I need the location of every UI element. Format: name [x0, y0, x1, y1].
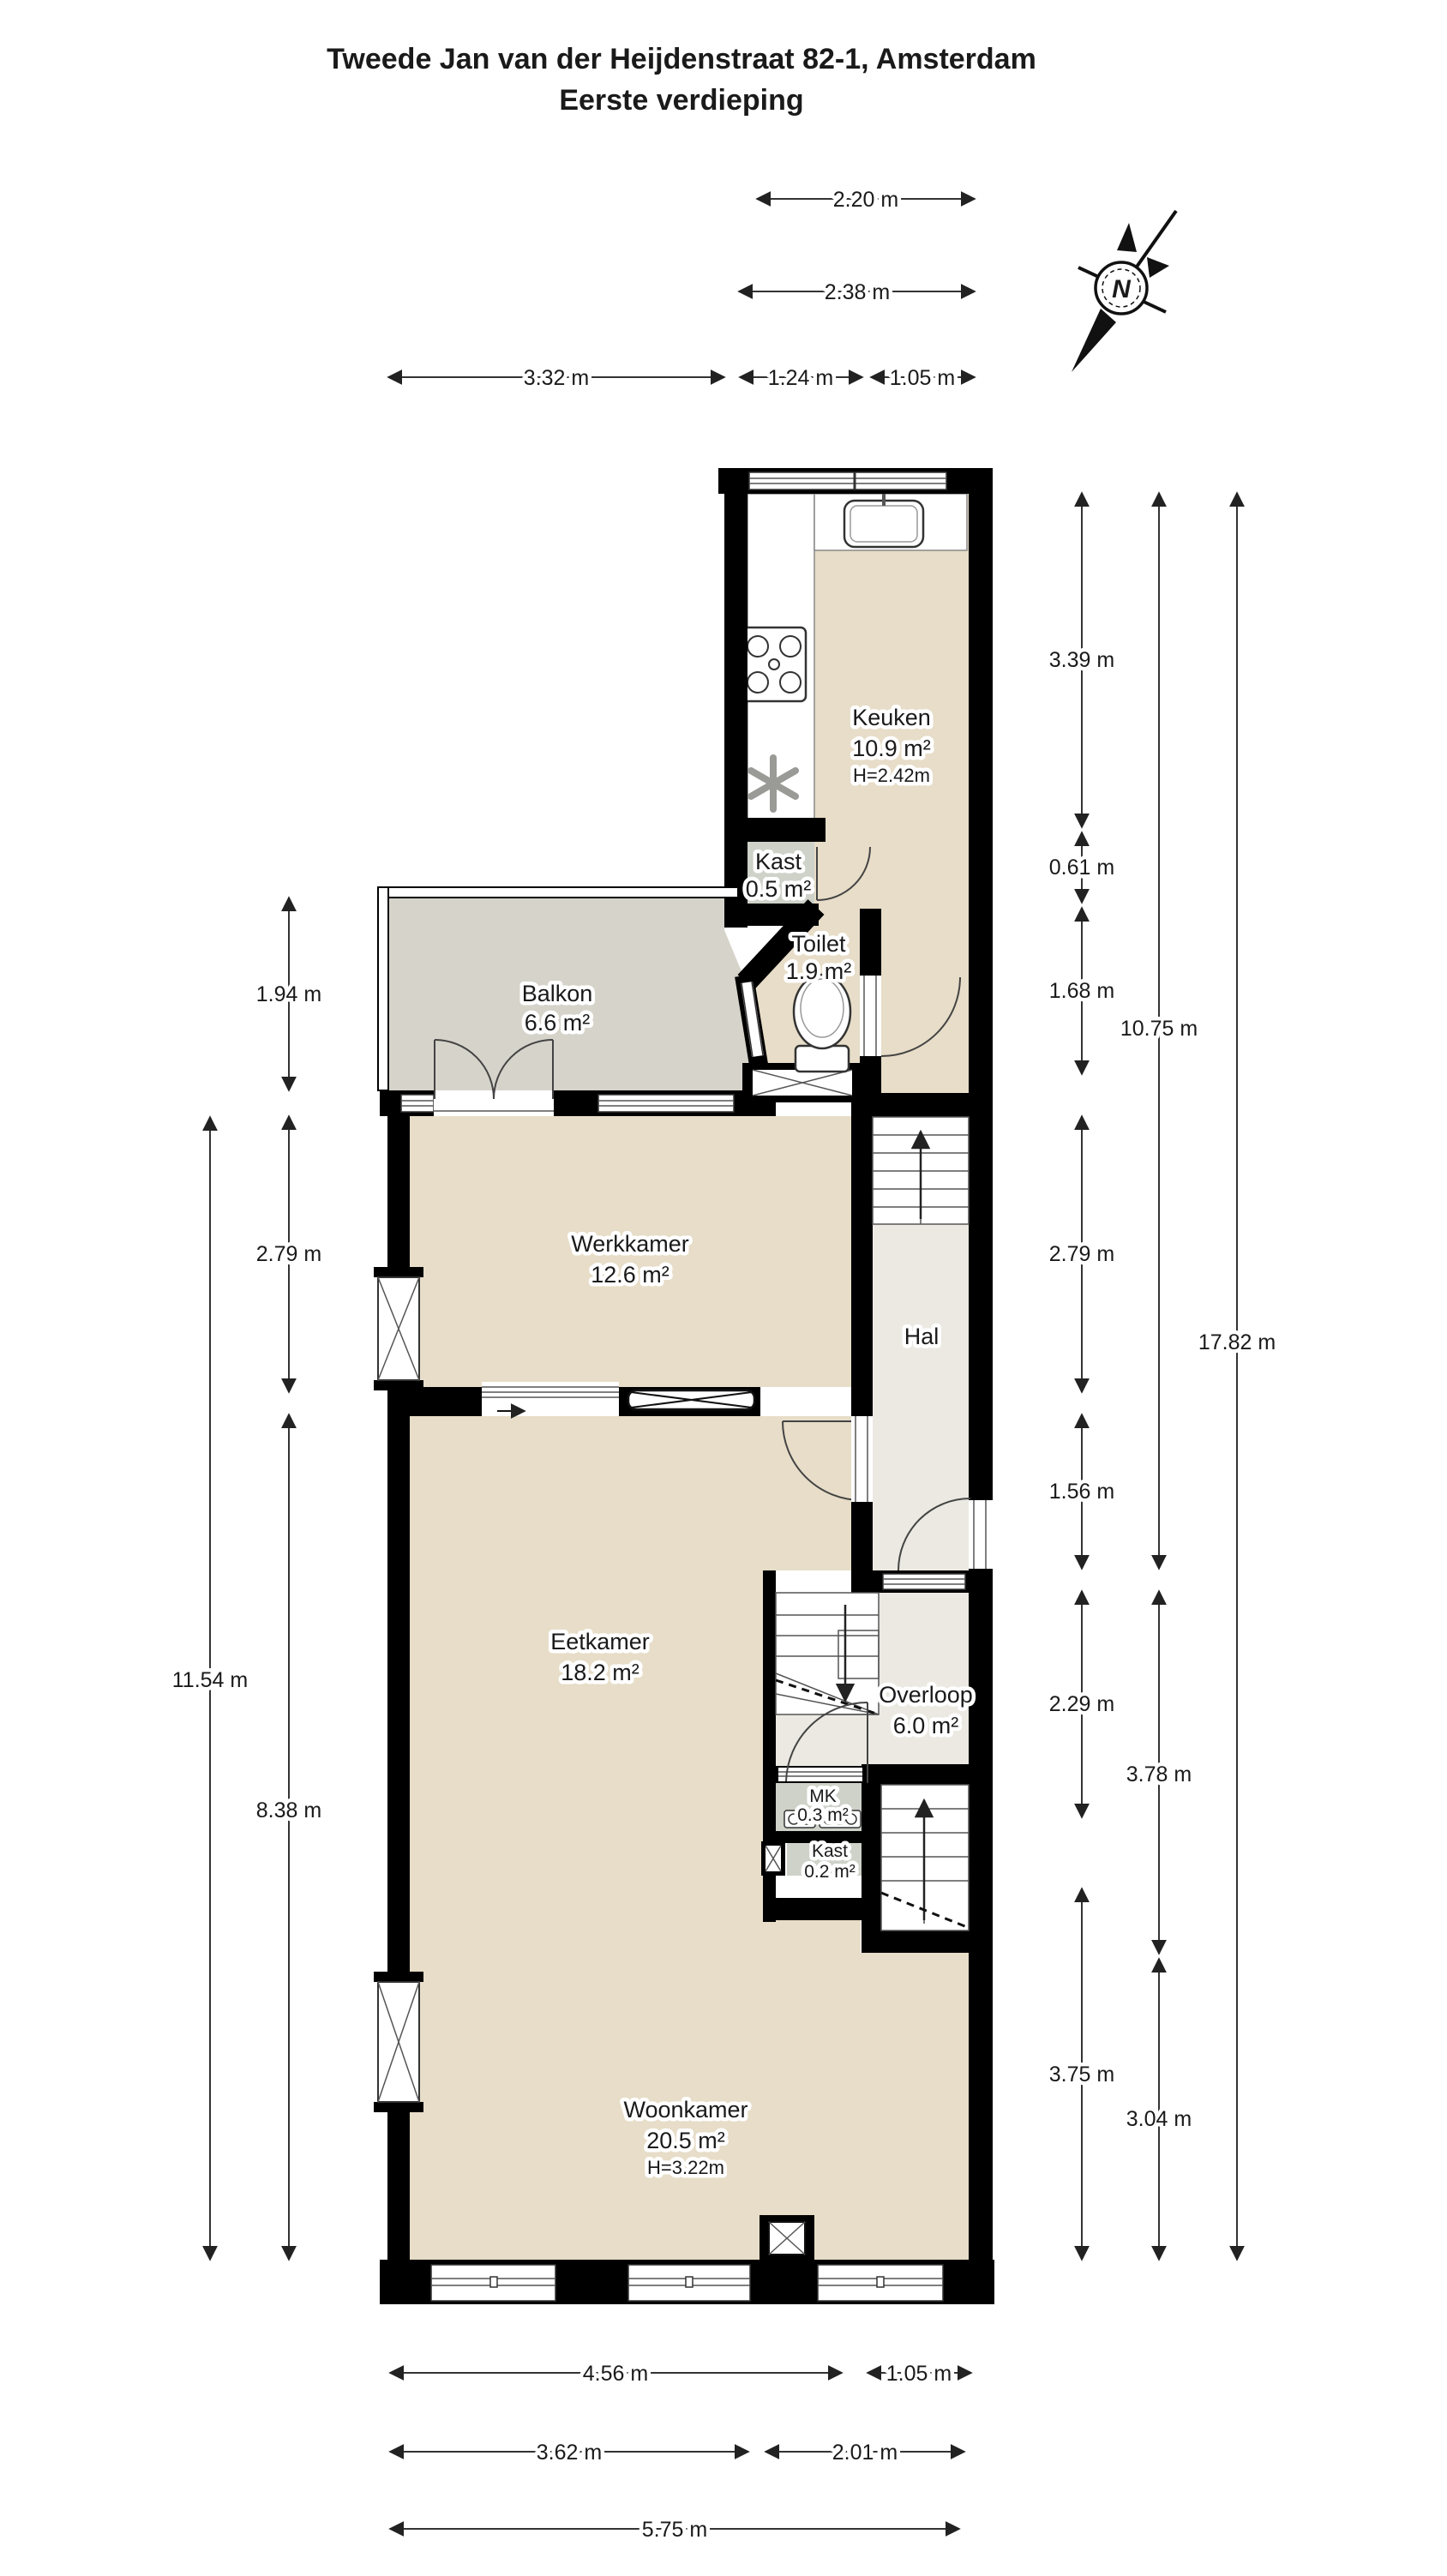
- dim-left-838: 8.38 m: [256, 1798, 321, 1822]
- stairs-winder: [776, 1593, 879, 1714]
- label-toilet-name: Toilet: [791, 931, 846, 957]
- window-balcony-left: [401, 1095, 434, 1112]
- floorplan-drawing: Tweede Jan van der Heijdenstraat 82-1, A…: [0, 0, 1447, 2572]
- dim-bottom-362: 3.62 m: [537, 2441, 602, 2465]
- label-kast-boven-area: 0.5 m²: [746, 876, 812, 902]
- dim-right-1075: 10.75 m: [1120, 1017, 1198, 1041]
- dim-bottom-105: 1.05 m: [886, 2362, 952, 2386]
- label-woonkamer-area: 20.5 m²: [646, 2128, 725, 2153]
- toilet-icon: [794, 975, 850, 1072]
- window-kitchen-top: [749, 472, 946, 489]
- mk-threshold: [778, 1768, 862, 1781]
- stove-icon: [742, 627, 806, 701]
- label-balkon-name: Balkon: [522, 981, 593, 1006]
- dim-top-332: 3.32 m: [524, 366, 589, 390]
- wall-stair2-bottom: [862, 1930, 993, 1953]
- dim-right-279: 2.79 m: [1049, 1242, 1114, 1266]
- dim-top-124: 1.24 m: [768, 366, 833, 390]
- window-balcony-right: [598, 1095, 734, 1112]
- dim-left-194: 1.94 m: [256, 982, 321, 1006]
- dim-right-339: 3.39 m: [1049, 648, 1114, 672]
- flue-inner: [769, 2222, 805, 2255]
- compass-south-blade: [1072, 309, 1116, 372]
- label-werkkamer-name: Werkkamer: [571, 1231, 689, 1257]
- compass-north-point: [1117, 223, 1137, 252]
- sliding-door: [482, 1382, 619, 1416]
- dim-bottom-575: 5.75 m: [642, 2518, 707, 2542]
- label-woonkamer-name: Woonkamer: [623, 2097, 748, 2123]
- shaft-kast-onder: [761, 1841, 785, 1876]
- room-keuken-floor-lower: [881, 909, 969, 1093]
- wall-kitchen-left: [724, 468, 748, 928]
- label-overloop-area: 6.0 m²: [893, 1713, 959, 1738]
- label-mk-name: MK: [809, 1786, 837, 1806]
- wall-stair2-left: [862, 1785, 881, 1953]
- label-eetkamer-name: Eetkamer: [550, 1629, 650, 1654]
- label-woonkamer-height: H=3.22m: [647, 2157, 724, 2178]
- dim-left-279: 2.79 m: [256, 1242, 321, 1266]
- label-overloop-name: Overloop: [879, 1682, 973, 1708]
- label-kast-boven-name: Kast: [755, 849, 802, 874]
- floorplan-page: Tweede Jan van der Heijdenstraat 82-1, A…: [0, 0, 1447, 2572]
- room-woonkamer-floor-right: [861, 1953, 969, 2260]
- label-eetkamer-area: 18.2 m²: [561, 1660, 639, 1685]
- window-hal-overloop: [883, 1574, 965, 1589]
- compass-east-point: [1147, 257, 1169, 278]
- dim-left-1154: 11.54 m: [172, 1668, 248, 1692]
- label-kast-onder-area: 0.2 m²: [804, 1862, 856, 1882]
- label-keuken-height: H=2.42m: [853, 765, 930, 786]
- room-keuken-floor: [814, 494, 969, 909]
- page-subtitle: Eerste verdieping: [559, 84, 803, 117]
- window-facade-1: [431, 2265, 555, 2301]
- label-kast-onder-name: Kast: [812, 1841, 848, 1861]
- compass-rose: N: [1072, 211, 1176, 372]
- dim-top-220: 2.20 m: [833, 188, 898, 212]
- dim-bottom-201: 2.01 m: [832, 2441, 898, 2465]
- window-werkkamer-left: [374, 1267, 423, 1390]
- stairs-hal: [873, 1117, 969, 1224]
- dim-right-378: 3.78 m: [1126, 1762, 1192, 1786]
- label-keuken-name: Keuken: [852, 705, 931, 730]
- dim-right-1782: 17.82 m: [1198, 1330, 1276, 1354]
- stairs-lower: [881, 1785, 969, 1930]
- dim-bottom-456: 4.56 m: [583, 2362, 648, 2386]
- label-werkkamer-area: 12.6 m²: [591, 1262, 669, 1288]
- dim-right-304: 3.04 m: [1126, 2107, 1192, 2131]
- page-title: Tweede Jan van der Heijdenstraat 82-1, A…: [327, 43, 1036, 75]
- label-keuken-area: 10.9 m²: [852, 736, 931, 761]
- label-balkon-area: 6.6 m²: [525, 1010, 591, 1036]
- plan-title-block: Tweede Jan van der Heijdenstraat 82-1, A…: [327, 43, 1036, 117]
- label-hal-name: Hal: [904, 1324, 940, 1349]
- dim-top-238: 2.38 m: [825, 280, 890, 304]
- label-toilet-area: 1.9 m²: [786, 958, 852, 984]
- window-woonkamer-left: [374, 1972, 423, 2112]
- room-woonkamer-floor-mid: [763, 1920, 861, 2260]
- wall-werkkamer-bottom-left: [387, 1387, 482, 1416]
- crossed-panel: [628, 1390, 754, 1409]
- wall-kast-boven-top: [724, 818, 826, 842]
- balcony-railing-top: [378, 887, 738, 898]
- dim-right-061: 0.61 m: [1049, 856, 1114, 880]
- wall-right-exterior: [969, 468, 993, 2304]
- balcony-railing-left: [378, 887, 388, 1090]
- dim-right-229: 2.29 m: [1049, 1692, 1114, 1716]
- wall-stair2-top: [862, 1764, 993, 1785]
- dim-right-168: 1.68 m: [1049, 979, 1114, 1003]
- dim-right-375: 3.75 m: [1049, 2063, 1114, 2087]
- dim-right-156: 1.56 m: [1049, 1480, 1114, 1504]
- compass-north-letter: N: [1112, 275, 1132, 303]
- window-facade-3: [818, 2265, 943, 2301]
- dim-top-105: 1.05 m: [890, 366, 955, 390]
- label-mk-area: 0.3 m²: [797, 1805, 849, 1825]
- wall-kast-onder-bottom: [763, 1898, 862, 1920]
- window-facade-2: [628, 2265, 750, 2301]
